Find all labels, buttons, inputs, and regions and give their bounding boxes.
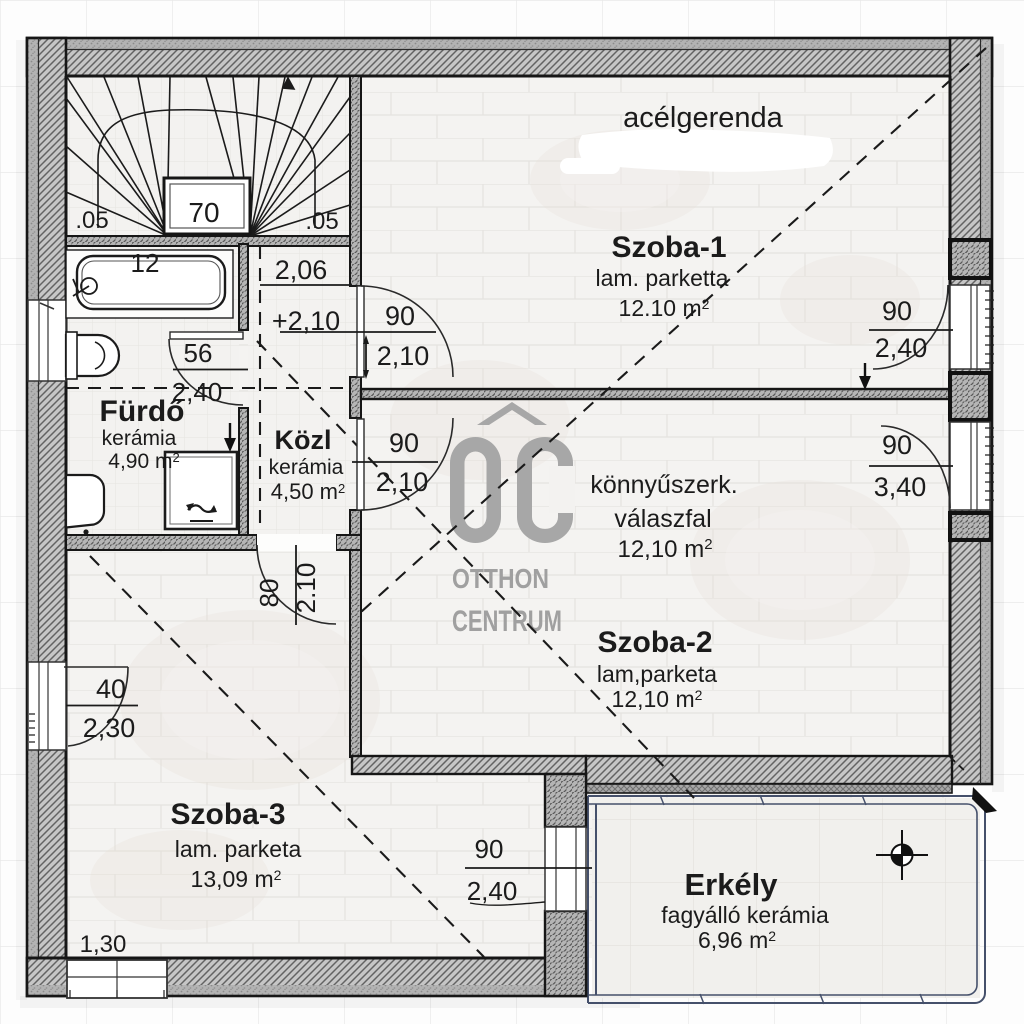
svg-text:Fürdő: Fürdő xyxy=(100,395,185,428)
svg-text:2,40: 2,40 xyxy=(467,876,518,906)
svg-text:3,40: 3,40 xyxy=(874,472,927,502)
svg-text:56: 56 xyxy=(184,338,213,368)
svg-text:válaszfal: válaszfal xyxy=(614,505,711,533)
svg-text:4,90 m2: 4,90 m2 xyxy=(108,450,179,473)
svg-text:CENTRUM: CENTRUM xyxy=(452,605,562,638)
svg-text:Szoba-2: Szoba-2 xyxy=(597,626,712,659)
svg-text:12: 12 xyxy=(131,248,160,278)
svg-text:40: 40 xyxy=(96,674,126,704)
svg-text:fagyálló kerámia: fagyálló kerámia xyxy=(661,902,829,928)
svg-text:könnyűszerk.: könnyűszerk. xyxy=(590,471,737,499)
svg-text:OTTHON: OTTHON xyxy=(452,563,549,594)
svg-text:lam. parketa: lam. parketa xyxy=(175,836,302,862)
svg-text:90: 90 xyxy=(882,430,912,460)
svg-text:2,30: 2,30 xyxy=(83,713,136,743)
svg-text:12.10 m2: 12.10 m2 xyxy=(619,295,710,321)
svg-text:Szoba-3: Szoba-3 xyxy=(170,798,285,831)
svg-text:.05: .05 xyxy=(75,207,108,234)
svg-text:2,06: 2,06 xyxy=(275,255,328,285)
svg-text:2,10: 2,10 xyxy=(376,467,429,497)
svg-text:kerámia: kerámia xyxy=(269,456,344,479)
svg-text:+2,10: +2,10 xyxy=(272,306,340,336)
svg-text:.05: .05 xyxy=(305,208,338,235)
svg-text:6,96 m2: 6,96 m2 xyxy=(698,927,776,953)
svg-text:lam,parketa: lam,parketa xyxy=(597,661,717,687)
svg-text:90: 90 xyxy=(385,301,415,331)
svg-text:4,50 m2: 4,50 m2 xyxy=(271,479,346,504)
svg-text:90: 90 xyxy=(882,296,912,326)
svg-text:1,30: 1,30 xyxy=(80,931,127,958)
svg-text:13,09 m2: 13,09 m2 xyxy=(191,866,282,892)
svg-text:90: 90 xyxy=(389,428,419,458)
svg-text:acélgerenda: acélgerenda xyxy=(623,102,783,134)
svg-text:2,10: 2,10 xyxy=(377,341,430,371)
svg-text:Szoba-1: Szoba-1 xyxy=(611,231,726,264)
svg-text:90: 90 xyxy=(475,834,504,864)
svg-text:2.10: 2.10 xyxy=(291,563,321,614)
svg-text:Erkély: Erkély xyxy=(684,867,778,902)
svg-text:lam. parketta: lam. parketta xyxy=(596,265,729,291)
svg-text:12,10 m2: 12,10 m2 xyxy=(612,686,703,712)
svg-text:80: 80 xyxy=(254,579,284,608)
svg-text:kerámia: kerámia xyxy=(102,427,177,450)
svg-text:70: 70 xyxy=(188,197,219,228)
svg-text:12,10 m2: 12,10 m2 xyxy=(617,536,712,563)
svg-text:2,40: 2,40 xyxy=(875,333,928,363)
svg-text:Közl: Közl xyxy=(275,425,332,455)
